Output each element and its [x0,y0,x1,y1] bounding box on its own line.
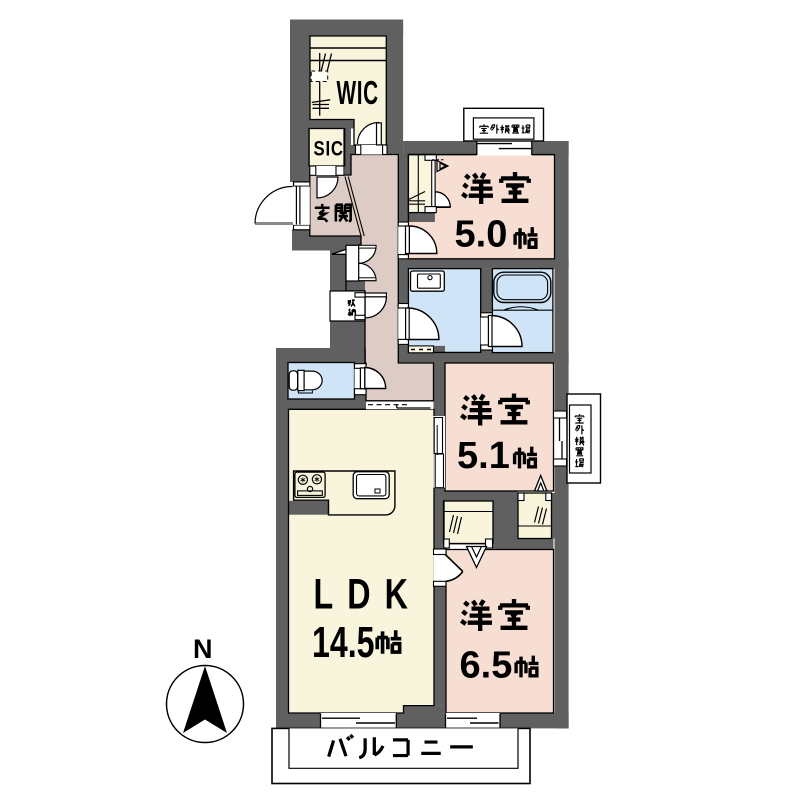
svg-text:5.1: 5.1 [457,435,510,477]
svg-text:N: N [193,634,213,664]
svg-text:14.5: 14.5 [312,618,375,667]
svg-text:6.5: 6.5 [460,645,513,687]
svg-text:LDK: LDK [314,571,423,619]
svg-text:5.0: 5.0 [455,213,508,255]
svg-text:SIC: SIC [313,138,343,161]
svg-text:WIC: WIC [337,74,379,111]
